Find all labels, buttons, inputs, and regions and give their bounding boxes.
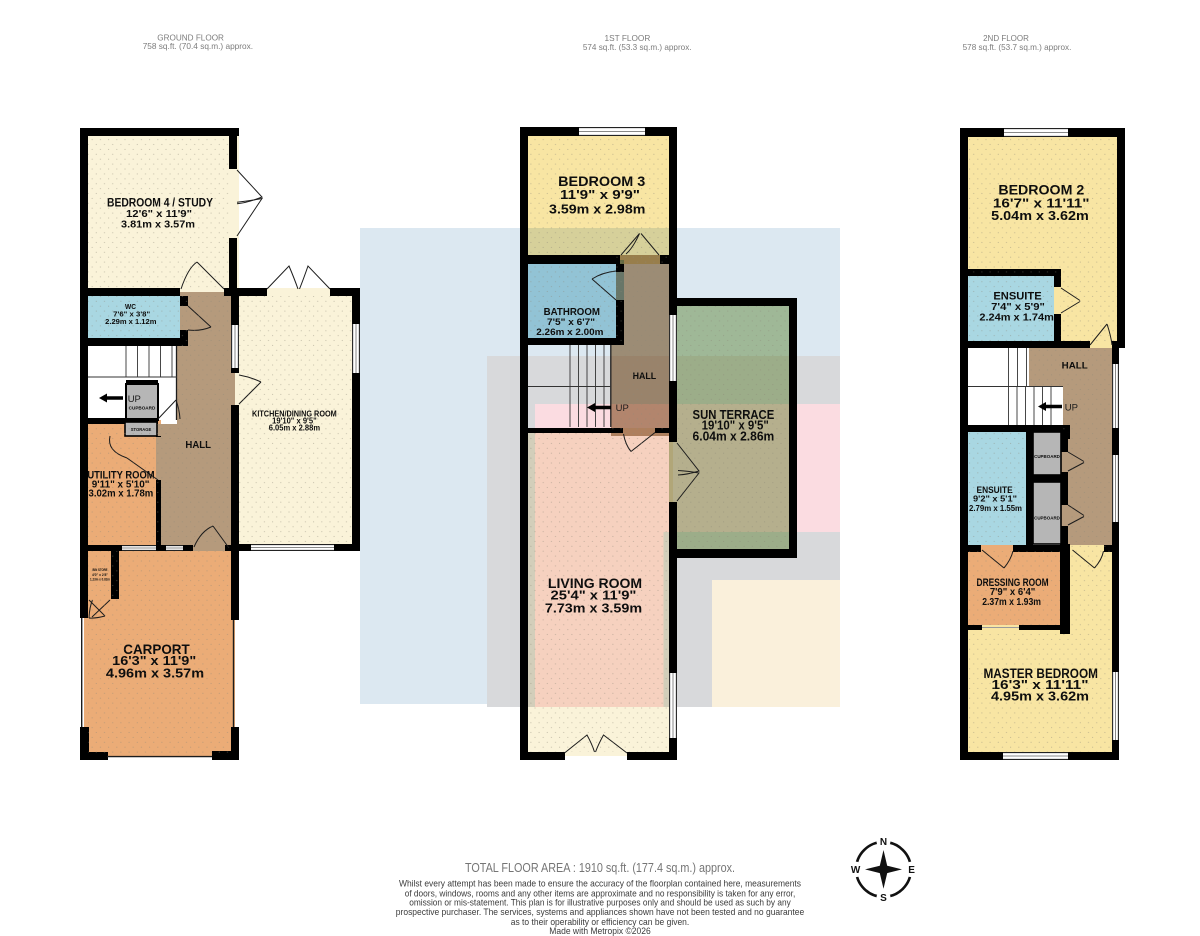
svg-text:W: W bbox=[851, 865, 861, 876]
svg-text:S: S bbox=[880, 893, 887, 904]
svg-text:Made with Metropix ©2026: Made with Metropix ©2026 bbox=[549, 926, 651, 936]
svg-text:CUPBOARD: CUPBOARD bbox=[1034, 454, 1060, 459]
svg-text:578 sq.ft. (53.7 sq.m.) approx: 578 sq.ft. (53.7 sq.m.) approx. bbox=[963, 42, 1072, 52]
svg-text:E: E bbox=[908, 865, 915, 876]
svg-text:CUPBOARD: CUPBOARD bbox=[129, 406, 156, 411]
svg-text:N: N bbox=[880, 837, 887, 848]
svg-text:574 sq.ft. (53.3 sq.m.) approx: 574 sq.ft. (53.3 sq.m.) approx. bbox=[583, 42, 692, 52]
svg-text:CUPBOARD: CUPBOARD bbox=[1034, 516, 1060, 521]
svg-text:758 sq.ft. (70.4 sq.m.) approx: 758 sq.ft. (70.4 sq.m.) approx. bbox=[143, 41, 253, 51]
svg-text:TOTAL FLOOR AREA : 1910 sq.ft.: TOTAL FLOOR AREA : 1910 sq.ft. (177.4 sq… bbox=[465, 860, 735, 875]
svg-text:UP: UP bbox=[128, 394, 141, 405]
